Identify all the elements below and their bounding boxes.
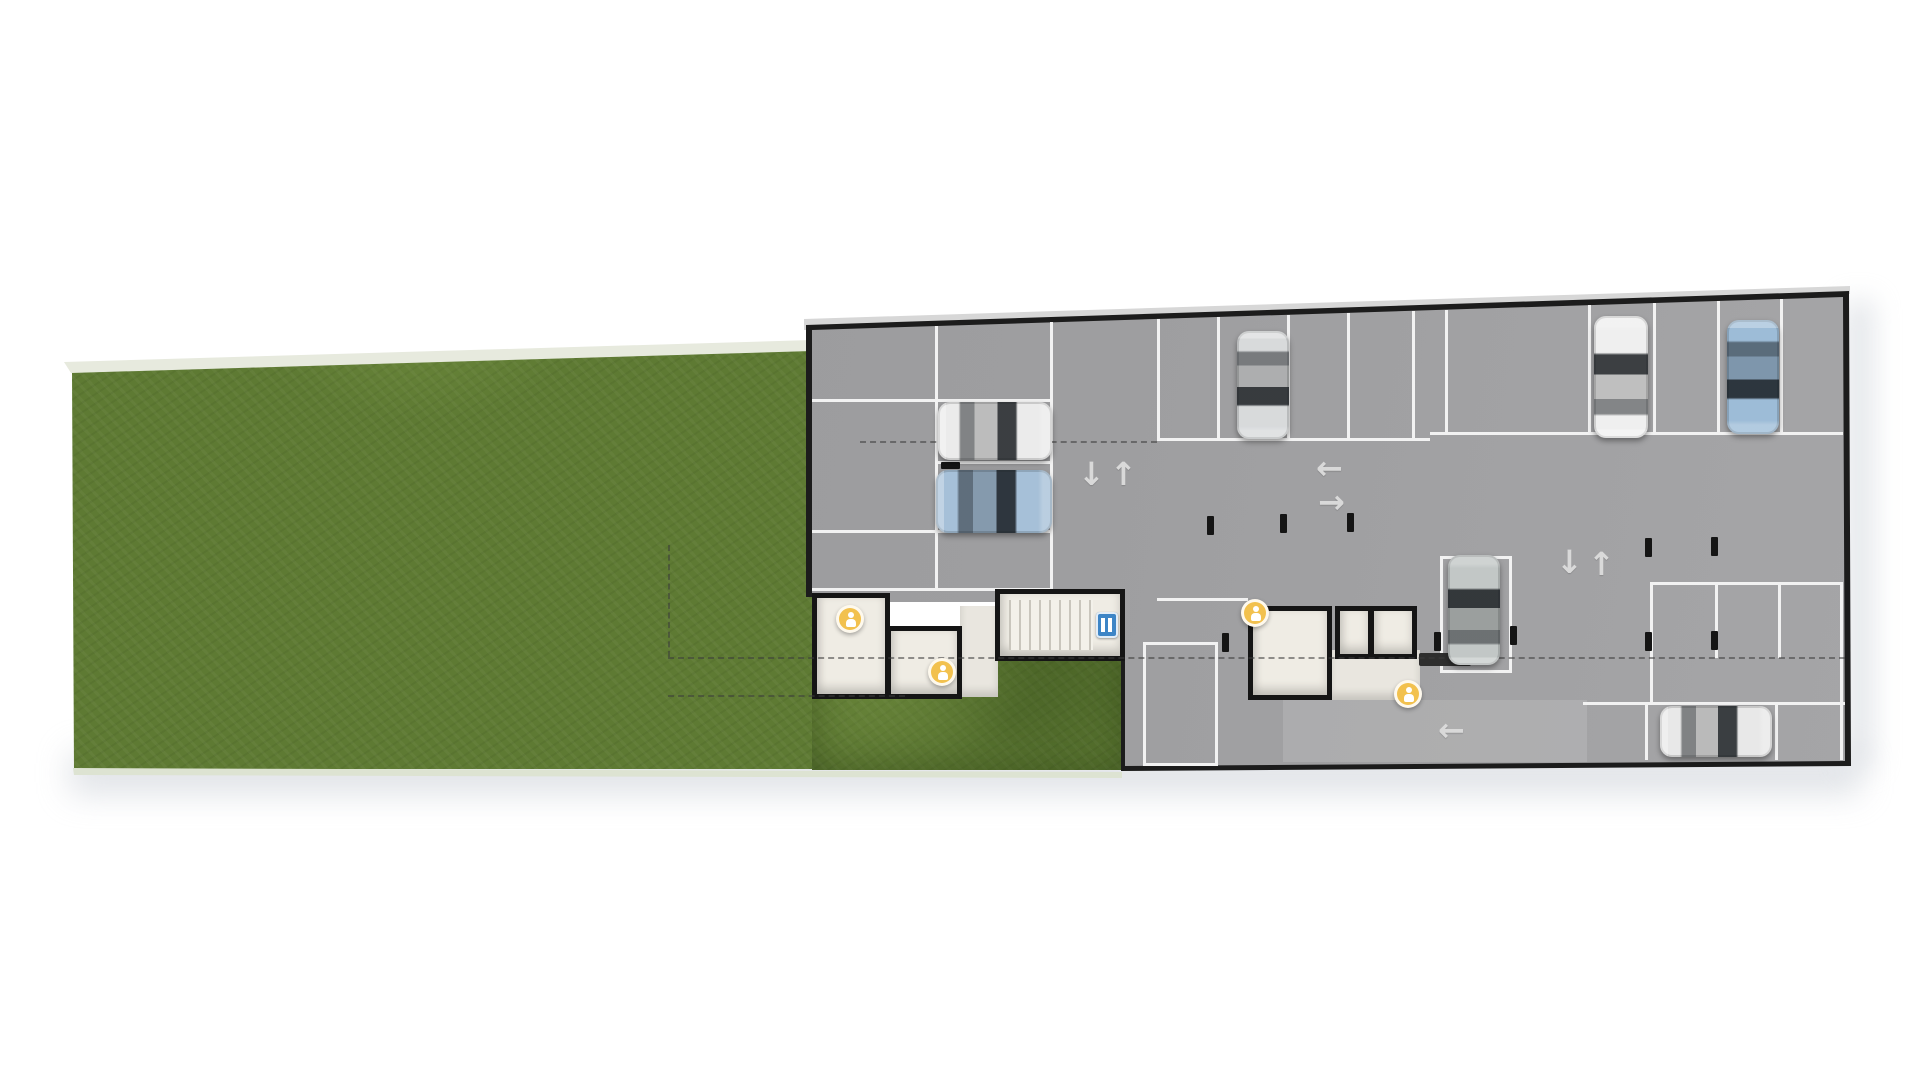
lane-arrow-down-icon: ↓ (1556, 546, 1583, 578)
stall-line (1650, 582, 1843, 585)
site-plan-canvas: ↓ ↑ ← → ↓ ↑ ← (0, 0, 1920, 1080)
car-glass (1727, 320, 1779, 434)
car-glass (936, 470, 1052, 533)
car-glass (1448, 555, 1500, 665)
column-mark (941, 462, 960, 469)
parked-car-white (1594, 316, 1648, 438)
column-mark (1347, 513, 1354, 532)
drive-lane-light-band (1283, 700, 1587, 762)
stall-line (1778, 582, 1781, 658)
lane-arrow-down-icon: ↓ (1078, 458, 1105, 490)
amenity-marker-icon[interactable] (1394, 680, 1422, 708)
elevator-icon[interactable] (1096, 612, 1118, 638)
lane-arrow-right-icon: → (1318, 486, 1345, 518)
stall-line (1717, 301, 1720, 432)
lane-arrow-left-icon: ← (1316, 452, 1343, 484)
stall-line (1157, 319, 1160, 438)
column-mark (1645, 632, 1652, 651)
room-5 (1369, 606, 1417, 659)
stall-line (1445, 310, 1448, 432)
parked-car-white (938, 402, 1052, 460)
column-mark (1510, 626, 1517, 645)
vestibule (960, 606, 998, 697)
stall-line (1217, 317, 1220, 438)
parked-car-white (1660, 706, 1772, 757)
lane-arrow-up-icon: ↑ (1110, 458, 1137, 490)
stall-line (1157, 438, 1430, 441)
stall-line (1412, 311, 1415, 438)
column-mark (1434, 632, 1441, 651)
stall-line (935, 326, 938, 588)
stall-line (1050, 322, 1053, 588)
parked-car-blue (1727, 320, 1779, 434)
stall-line (1583, 702, 1845, 705)
parked-car-blue (936, 470, 1052, 533)
amenity-marker-icon[interactable] (836, 605, 864, 633)
stall-line (1347, 313, 1350, 438)
column-mark (1711, 537, 1718, 556)
car-glass (938, 402, 1052, 460)
dashed-property-line (668, 545, 670, 657)
car-glass (1237, 331, 1289, 439)
column-mark (1207, 516, 1214, 535)
column-mark (1711, 631, 1718, 650)
dashed-property-line (668, 695, 905, 697)
stall-line (1157, 598, 1248, 601)
stall-line (1840, 582, 1843, 760)
amenity-marker-icon[interactable] (928, 658, 956, 686)
car-glass (1660, 706, 1772, 757)
room-4 (1335, 606, 1373, 659)
stall-line (1775, 702, 1778, 760)
stairs-icon (1009, 600, 1093, 650)
parked-car-silver (1237, 331, 1289, 439)
stall-line (1645, 702, 1648, 760)
stall-line (1588, 305, 1591, 432)
stair-core (995, 589, 1125, 661)
vacant-parking-stall (1143, 642, 1218, 766)
column-mark (1645, 538, 1652, 557)
lane-arrow-left-icon: ← (1438, 714, 1465, 746)
column-mark (1222, 633, 1229, 652)
column-mark (1280, 514, 1287, 533)
dashed-property-line (668, 657, 1845, 659)
car-glass (1594, 316, 1648, 438)
lane-arrow-up-icon: ↑ (1588, 548, 1615, 580)
stall-line (1653, 303, 1656, 432)
amenity-marker-icon[interactable] (1241, 599, 1269, 627)
parked-car-gray (1448, 555, 1500, 665)
stall-line (1780, 299, 1783, 432)
